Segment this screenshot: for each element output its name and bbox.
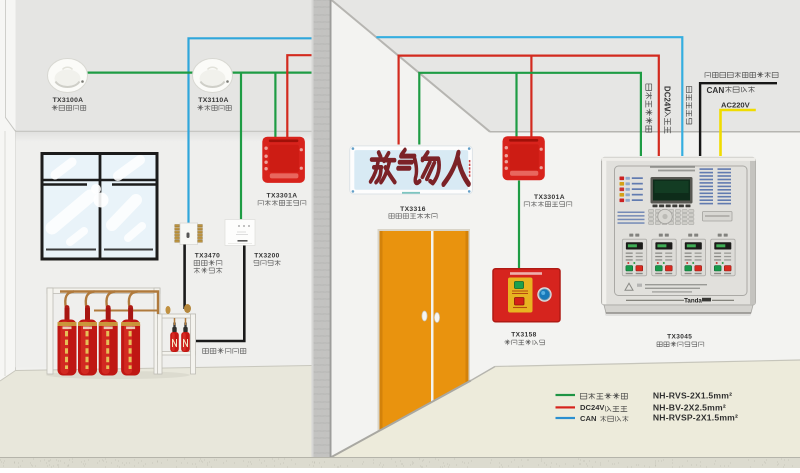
svg-text:TX3316: TX3316 <box>400 206 426 213</box>
svg-text:TX3301A: TX3301A <box>534 194 565 201</box>
svg-text:TX3158: TX3158 <box>511 332 537 339</box>
svg-text:NH-RVS-2X1.5mm²: NH-RVS-2X1.5mm² <box>653 390 732 400</box>
svg-text:Tanda: Tanda <box>684 298 702 305</box>
svg-text:TX3045: TX3045 <box>667 334 692 341</box>
svg-text:DC24V: DC24V <box>663 86 672 112</box>
svg-text:TX3100A: TX3100A <box>53 97 84 104</box>
svg-text:CAN: CAN <box>707 86 725 95</box>
svg-text:TX3200: TX3200 <box>254 253 280 260</box>
svg-text:CAN: CAN <box>580 414 596 423</box>
svg-text:AC220V: AC220V <box>721 101 751 110</box>
svg-text:NH-BV-2X2.5mm²: NH-BV-2X2.5mm² <box>653 402 726 412</box>
svg-text:TX3110A: TX3110A <box>198 97 228 104</box>
svg-text:TX3301A: TX3301A <box>266 193 297 200</box>
svg-text:TX3470: TX3470 <box>195 253 221 260</box>
svg-text:DC24V: DC24V <box>580 403 605 412</box>
svg-text:NH-RVSP-2X1.5mm²: NH-RVSP-2X1.5mm² <box>653 412 738 422</box>
